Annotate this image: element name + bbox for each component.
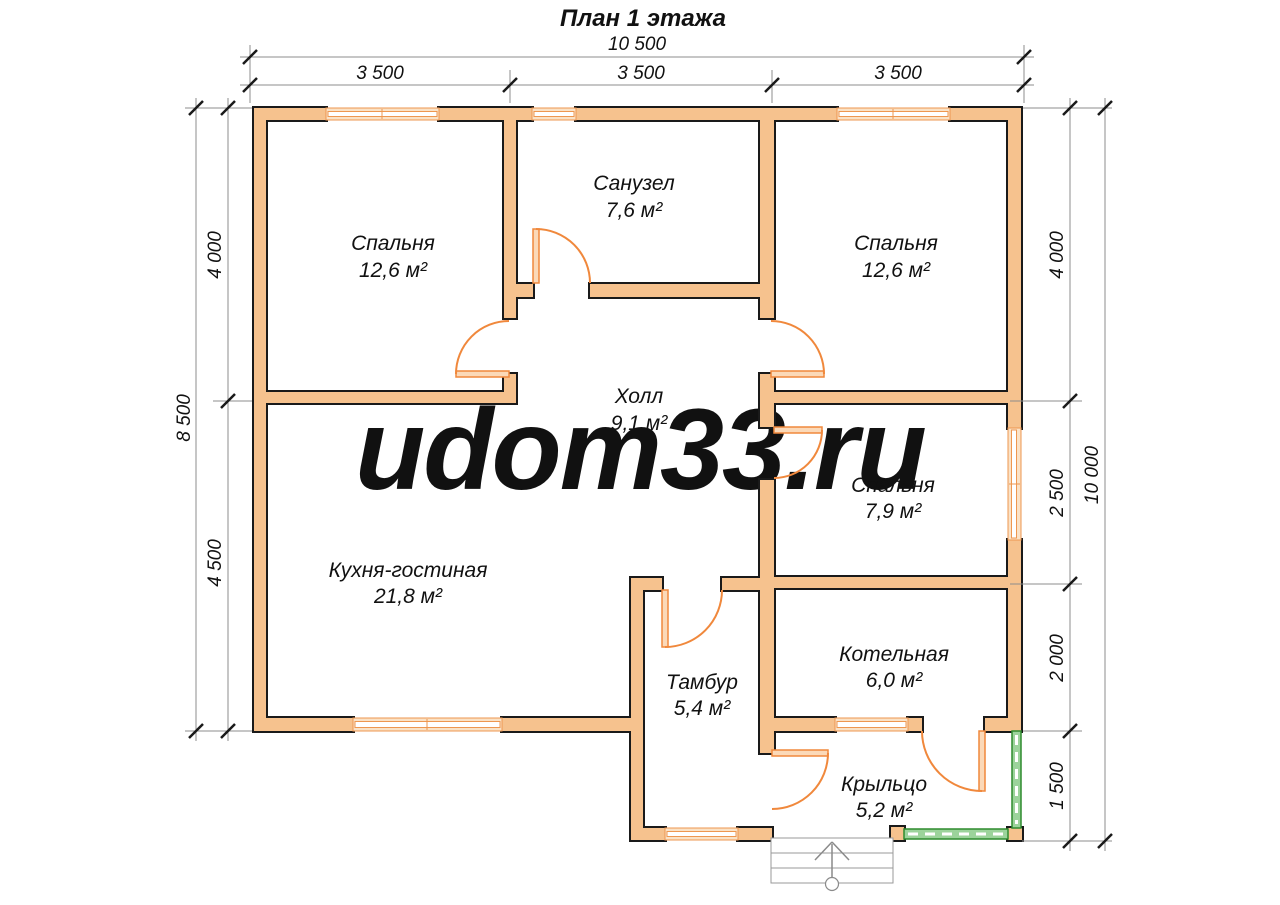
porch-railing-right bbox=[1012, 731, 1021, 828]
dim-right-overall: 10 000 bbox=[1082, 446, 1103, 505]
window-bedroom-left-icon bbox=[326, 108, 439, 120]
dim-top-segment-2: 3 500 bbox=[617, 63, 665, 84]
window-boiler-icon bbox=[835, 718, 908, 731]
dim-left-overall: 8 500 bbox=[174, 394, 195, 442]
floor-plan-page: udom33.ru bbox=[0, 0, 1280, 905]
svg-text:5,2 м²: 5,2 м² bbox=[856, 799, 913, 822]
dim-right-segment-3: 2 000 bbox=[1047, 634, 1068, 683]
svg-text:Тамбур: Тамбур bbox=[666, 671, 738, 694]
window-vestibule-icon bbox=[665, 828, 738, 840]
entrance-axis-mark bbox=[826, 878, 839, 891]
dim-right-segment-2: 2 500 bbox=[1047, 469, 1068, 518]
window-bedroom-small-icon bbox=[1008, 428, 1021, 540]
entrance-steps bbox=[771, 838, 893, 891]
svg-text:Санузел: Санузел bbox=[593, 172, 675, 195]
floor-plan-canvas: udom33.ru bbox=[0, 0, 1280, 905]
svg-text:12,6 м²: 12,6 м² bbox=[359, 259, 428, 282]
svg-text:Спальня: Спальня bbox=[851, 474, 935, 497]
dim-top-segment-3: 3 500 bbox=[874, 63, 922, 84]
page-title: План 1 этажа bbox=[560, 5, 726, 32]
svg-text:Крыльцо: Крыльцо bbox=[841, 773, 927, 796]
svg-text:9,1 м²: 9,1 м² bbox=[611, 412, 668, 435]
svg-text:Спальня: Спальня bbox=[351, 232, 435, 255]
svg-text:5,4 м²: 5,4 м² bbox=[674, 697, 731, 720]
dim-top-overall: 10 500 bbox=[608, 34, 667, 55]
svg-text:Спальня: Спальня bbox=[854, 232, 938, 255]
porch-railing-bottom bbox=[904, 829, 1008, 839]
svg-text:Котельная: Котельная bbox=[839, 643, 949, 666]
dim-left-segment-1: 4 000 bbox=[205, 231, 226, 279]
window-kitchen-icon bbox=[353, 718, 502, 731]
svg-text:21,8 м²: 21,8 м² bbox=[373, 585, 443, 608]
window-bathroom-icon bbox=[532, 108, 576, 120]
dim-left-segment-2: 4 500 bbox=[205, 539, 226, 587]
dim-right-segment-1: 4 000 bbox=[1047, 231, 1068, 279]
svg-text:Кухня-гостиная: Кухня-гостиная bbox=[329, 559, 488, 582]
svg-text:7,6 м²: 7,6 м² bbox=[606, 199, 663, 222]
window-bedroom-right-icon bbox=[837, 108, 950, 120]
dim-right-segment-4: 1 500 bbox=[1047, 762, 1068, 810]
svg-text:7,9 м²: 7,9 м² bbox=[865, 500, 922, 523]
svg-text:12,6 м²: 12,6 м² bbox=[862, 259, 931, 282]
dim-top-segment-1: 3 500 bbox=[356, 63, 404, 84]
svg-text:6,0 м²: 6,0 м² bbox=[866, 669, 923, 692]
svg-text:Холл: Холл bbox=[614, 385, 664, 408]
